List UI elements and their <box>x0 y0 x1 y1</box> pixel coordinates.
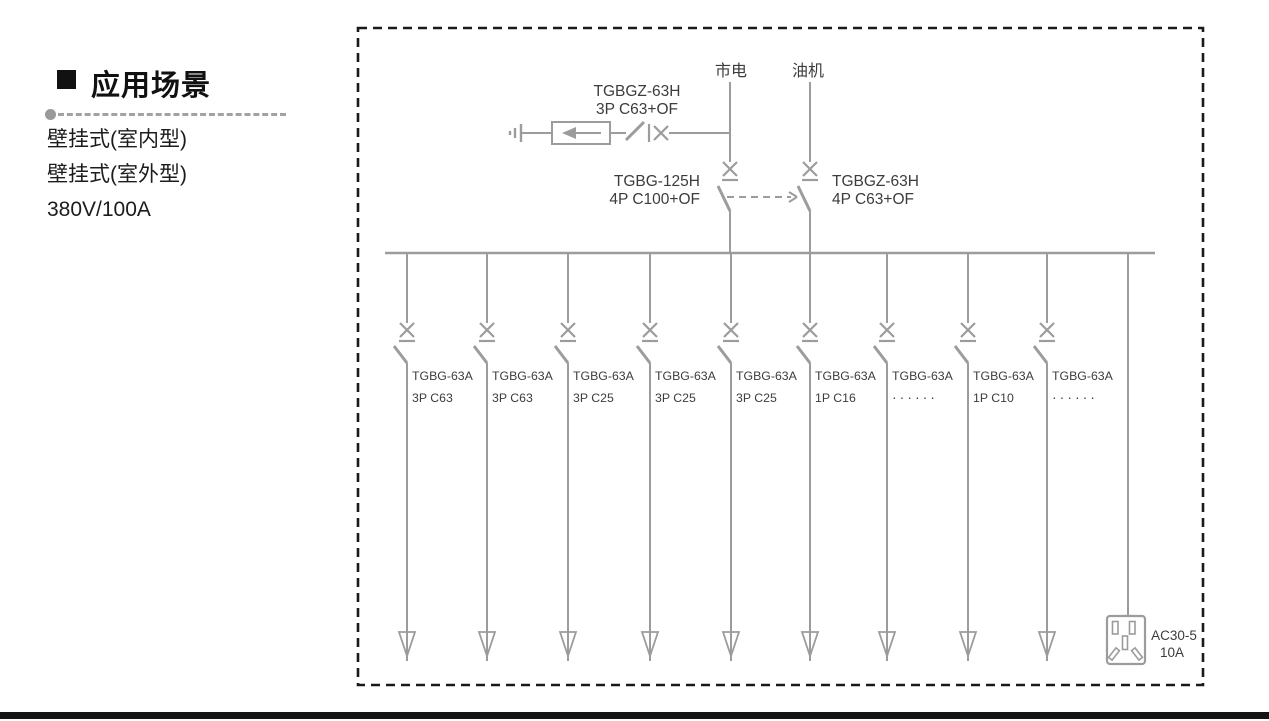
socket-branch <box>1107 253 1145 664</box>
feeder-branch-4 <box>637 253 658 661</box>
feeder-rating: ······ <box>1052 389 1098 405</box>
mains-breaker-model: TGBG-125H <box>614 173 700 190</box>
feeder-branch-5 <box>718 253 739 661</box>
mains-source-label: 市电 <box>715 62 747 80</box>
feeder-rating: 1P C10 <box>973 391 1014 405</box>
single-line-diagram: 市电 油机 TGBGZ-63H 3P C63+OF TGBG-125H 4P C… <box>0 0 1269 721</box>
feeder-rating: 3P C63 <box>412 391 453 405</box>
socket-model: AC30-5 <box>1151 628 1197 643</box>
spd-branch <box>510 122 730 144</box>
spd-breaker-rating: 3P C63+OF <box>596 101 678 118</box>
generator-incoming-line <box>798 82 818 253</box>
socket-rating: 10A <box>1160 645 1184 660</box>
feeder-model: TGBG-63A <box>492 369 554 383</box>
page: 应用场景 壁挂式(室内型) 壁挂式(室外型) 380V/100A <box>0 0 1269 721</box>
interlock-dashed-link <box>727 192 797 202</box>
feeder-branch-1 <box>394 253 415 661</box>
feeder-model: TGBG-63A <box>973 369 1035 383</box>
switch-blade <box>718 186 730 211</box>
bottom-rule <box>0 712 1269 719</box>
diagram-border <box>358 28 1203 685</box>
feeder-model: TGBG-63A <box>655 369 717 383</box>
spd-arrow-icon <box>562 127 601 139</box>
feeder-branch-7 <box>874 253 895 661</box>
feeder-rating: 3P C25 <box>736 391 777 405</box>
feeder-model: TGBG-63A <box>815 369 877 383</box>
feeder-rating: 3P C63 <box>492 391 533 405</box>
ground-icon <box>510 124 521 142</box>
feeder-model: TGBG-63A <box>1052 369 1114 383</box>
diagram-labels: 市电 油机 TGBGZ-63H 3P C63+OF TGBG-125H 4P C… <box>412 62 1197 660</box>
mains-incoming-line <box>718 82 738 253</box>
feeder-model: TGBG-63A <box>736 369 798 383</box>
breaker-symbol <box>802 162 818 180</box>
feeder-branch-3 <box>555 253 576 661</box>
feeder-rating: 1P C16 <box>815 391 856 405</box>
feeder-branch-2 <box>474 253 495 661</box>
feeder-branch-9 <box>1034 253 1055 661</box>
socket-icon <box>1107 616 1145 664</box>
breaker-symbol <box>722 162 738 180</box>
feeder-model: TGBG-63A <box>412 369 474 383</box>
breaker-x-icon <box>654 126 668 140</box>
generator-breaker-rating: 4P C63+OF <box>832 191 914 208</box>
feeder-model: TGBG-63A <box>573 369 635 383</box>
feeder-rating: 3P C25 <box>655 391 696 405</box>
spd-breaker-model: TGBGZ-63H <box>594 83 681 100</box>
feeder-rating: ······ <box>892 389 938 405</box>
feeder-branch-8 <box>955 253 976 661</box>
feeder-model: TGBG-63A <box>892 369 954 383</box>
feeder-rating: 3P C25 <box>573 391 614 405</box>
feeder-branch-6 <box>797 253 818 661</box>
generator-source-label: 油机 <box>792 62 824 80</box>
switch-blade <box>626 122 644 140</box>
mains-breaker-rating: 4P C100+OF <box>609 191 700 208</box>
switch-blade <box>798 186 810 211</box>
generator-breaker-model: TGBGZ-63H <box>832 173 919 190</box>
